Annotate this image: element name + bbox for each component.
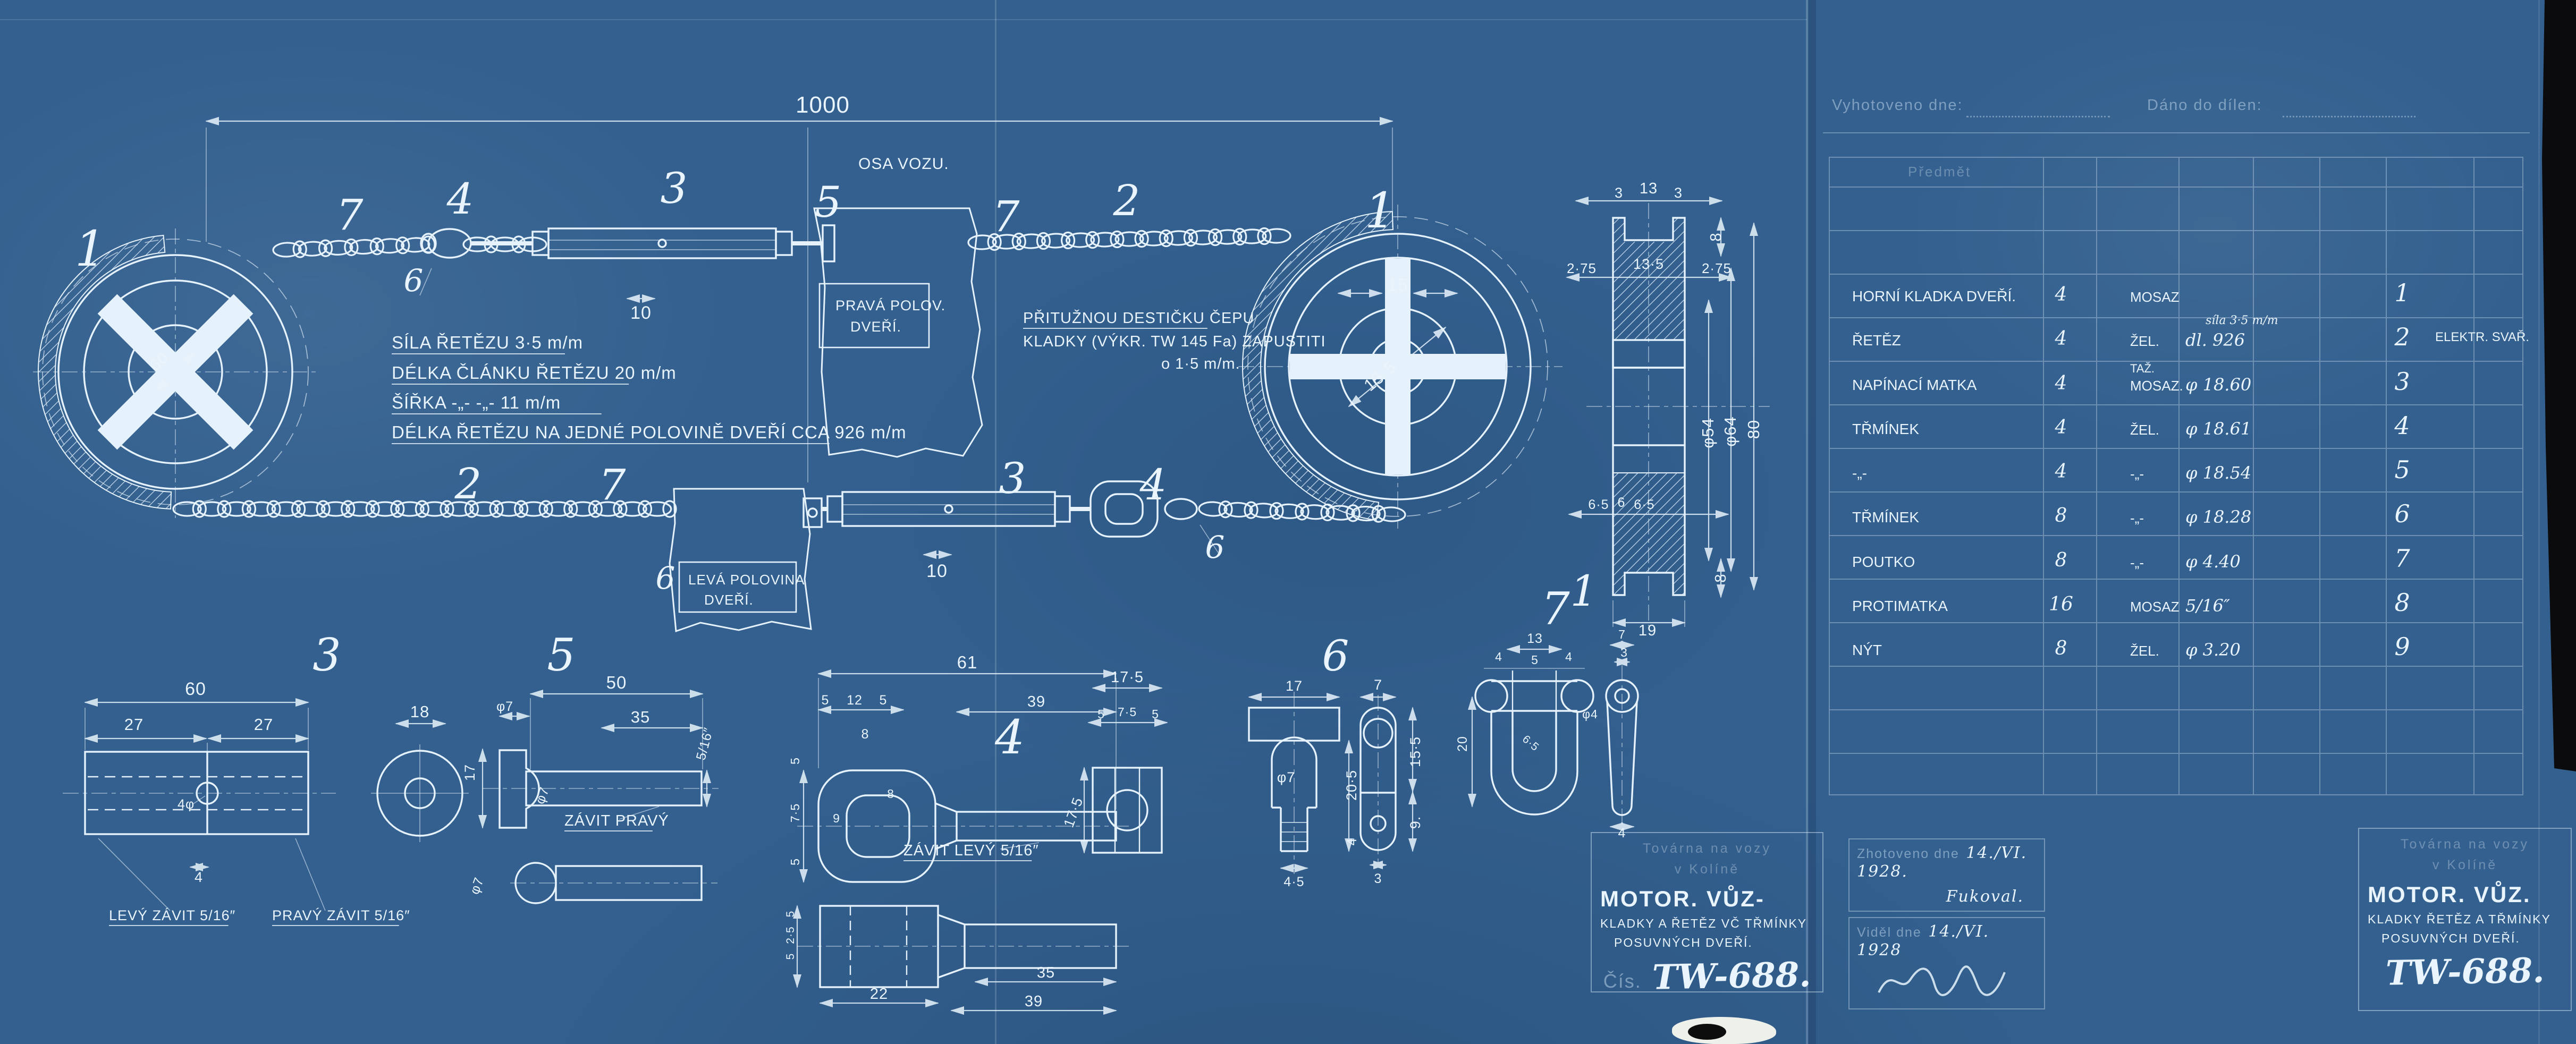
part-position: 4 bbox=[2394, 411, 2410, 440]
table-column-header: Předmět bbox=[1908, 164, 1971, 180]
drawing-label: 39 bbox=[1025, 993, 1043, 1010]
drawing-label: DVEŘÍ. bbox=[704, 592, 754, 608]
part-material: ŽEL. bbox=[2130, 422, 2159, 438]
part-material: -„- bbox=[2130, 510, 2144, 527]
drawing-label: 4 bbox=[1139, 460, 1167, 510]
factory-stamp-right: Továrna na vozy v Kolíně bbox=[2368, 834, 2562, 876]
drawing-label: 3 bbox=[1374, 871, 1382, 886]
drawing-label: 6 bbox=[404, 262, 424, 299]
part-name: POUTKO bbox=[1852, 554, 1915, 571]
chain-link bbox=[1250, 503, 1278, 518]
drawing-subtitle-1: KLADKY A ŘETĚZ VČ TŘMÍNKY bbox=[1600, 916, 1814, 931]
chain-link bbox=[223, 502, 250, 516]
chain-link bbox=[322, 502, 349, 516]
drawing-label: 7 bbox=[599, 460, 626, 510]
chain-link bbox=[1164, 231, 1193, 245]
factory-right-line1: Továrna na vozy bbox=[2401, 837, 2529, 852]
drawing-label: 15 bbox=[1387, 275, 1408, 295]
drawing-label: 5 bbox=[788, 858, 802, 865]
drawing-label: 4 bbox=[1495, 650, 1502, 664]
part-note: ELEKTR. SVAŘ. bbox=[2435, 330, 2529, 345]
part-material: ŽEL. bbox=[2130, 333, 2159, 350]
part-dimension: φ 18.28 bbox=[2185, 507, 2251, 527]
chain-link bbox=[350, 240, 378, 254]
drawing-label: φ4 bbox=[1582, 707, 1598, 721]
drawing-label: ZÁVIT PRAVÝ bbox=[564, 812, 669, 829]
part-material: ŽEL. bbox=[2130, 643, 2159, 659]
part-qty: 8 bbox=[2055, 505, 2067, 527]
drawing-label: 2·75 bbox=[1567, 260, 1597, 276]
part-qty: 4 bbox=[2055, 284, 2067, 305]
made-signature: Fukoval. bbox=[1857, 887, 2037, 906]
drawing-label: OSA VOZU. bbox=[858, 155, 949, 173]
detail-6-tpin-link bbox=[1249, 692, 1396, 874]
part-qty: 16 bbox=[2049, 593, 2073, 615]
part-dimension: φ 18.60 bbox=[2185, 375, 2251, 395]
chain-link bbox=[248, 502, 275, 516]
drawing-label: 4 bbox=[1345, 838, 1359, 846]
drawing-label: 18 bbox=[410, 702, 429, 721]
drawing-label: 17 bbox=[1286, 678, 1303, 694]
seen-date-stamp: Viděl dne 14./VI. 1928 bbox=[1848, 917, 2045, 1009]
drawing-label: 6·5 bbox=[1520, 733, 1541, 753]
chain-link bbox=[297, 502, 325, 516]
drawing-label: 7 bbox=[1541, 583, 1570, 635]
drawing-label: 27 bbox=[254, 715, 273, 734]
part-material: MOSAZ bbox=[2130, 599, 2179, 615]
blueprint-sheet: 1743572162763463546711000OSA VOZU.101060… bbox=[0, 0, 2576, 1044]
drawing-label: 4φ bbox=[178, 797, 195, 812]
drawing-label: 3 bbox=[313, 629, 341, 681]
drawing-label: 8 bbox=[887, 787, 894, 801]
part-dimension: φ 4.40 bbox=[2185, 551, 2241, 572]
made-date-stamp: Zhotoveno dne 14./VI. 1928. Fukoval. bbox=[1848, 838, 2045, 912]
part-dimension: φ 3.20 bbox=[2185, 640, 2241, 660]
part-name: NÝT bbox=[1852, 642, 1882, 659]
drawing-label: 5 bbox=[547, 629, 575, 681]
chain-link bbox=[1066, 233, 1094, 247]
part-dimension: 5/16″ bbox=[2185, 596, 2230, 616]
drawing-label: o 1·5 m/m. bbox=[1161, 355, 1240, 372]
drawing-label: φ54 bbox=[1699, 418, 1717, 448]
drawing-label: 9 bbox=[833, 811, 840, 825]
drawing-label: 35 bbox=[1037, 964, 1055, 981]
part-dimension-note: síla 3·5 m/m bbox=[2206, 314, 2278, 327]
drawing-label: 5 bbox=[1531, 653, 1539, 667]
part-dimension: φ 18.54 bbox=[2185, 463, 2251, 483]
made-date-label: Zhotoveno dne bbox=[1857, 846, 1960, 861]
part-position: 3 bbox=[2394, 367, 2410, 396]
factory-line2: v Kolíně bbox=[1675, 862, 1739, 877]
chain-link bbox=[1263, 228, 1291, 243]
drawing-label: 10 bbox=[926, 561, 948, 581]
drawing-label: PRAVÝ ZÁVIT 5/16″ bbox=[272, 907, 410, 923]
drawing-label: 6 bbox=[1205, 529, 1225, 565]
drawing-label: 3 bbox=[999, 454, 1026, 503]
part-name: TŘMÍNEK bbox=[1852, 509, 1919, 526]
chain-link bbox=[968, 235, 996, 249]
drawing-label: DÉLKA ČLÁNKU ŘETĚZU 20 m/m bbox=[392, 363, 677, 383]
bottom-chain-run-parts bbox=[670, 481, 1197, 631]
drawing-label: 7·5 bbox=[788, 803, 802, 822]
drawing-label: 13·5 bbox=[1633, 256, 1664, 272]
drawing-label: PŘITUŽNOU DESTIČKU ČEPU bbox=[1023, 309, 1254, 327]
part-position: 5 bbox=[2394, 455, 2410, 484]
drawing-label: 17 bbox=[462, 764, 478, 781]
part-qty: 4 bbox=[2055, 461, 2067, 482]
number-label: Čís. bbox=[1603, 970, 1642, 992]
drawing-subtitle-right-2: POSUVNÝCH DVEŘÍ. bbox=[2381, 931, 2562, 946]
part-qty: 4 bbox=[2055, 328, 2067, 350]
drawing-label: LEVÝ ZÁVIT 5/16″ bbox=[109, 907, 235, 923]
drawing-label: 8 bbox=[1708, 232, 1725, 241]
drawing-label: 61 bbox=[957, 652, 978, 672]
part-qty: 8 bbox=[2055, 638, 2067, 659]
drawing-label: 19 bbox=[1638, 622, 1657, 639]
factory-line1: Továrna na vozy bbox=[1643, 841, 1771, 856]
part-name: ŘETĚZ bbox=[1852, 332, 1901, 349]
detail-3-barrel bbox=[63, 744, 469, 842]
drawing-label: φ7 bbox=[1277, 769, 1296, 785]
to-workshop-line bbox=[2283, 116, 2415, 117]
chain-link bbox=[644, 502, 671, 516]
drawing-label: 27 bbox=[124, 715, 143, 734]
chain-link bbox=[1213, 230, 1241, 244]
pulley-cross-section bbox=[1586, 203, 1770, 626]
drawing-label: 3 bbox=[1674, 185, 1683, 201]
drawing-label: 5 bbox=[784, 911, 797, 918]
detail-4-eyebolt bbox=[797, 768, 1162, 987]
drawing-label: ZÁVIT LEVÝ 5/16″ bbox=[903, 842, 1039, 859]
chain-link bbox=[396, 502, 424, 516]
chain-link bbox=[1378, 507, 1406, 522]
title-block-center: Továrna na vozy v Kolíně MOTOR. VŮZ- KLA… bbox=[1591, 832, 1823, 992]
drawing-label: PRAVÁ POLOV. bbox=[835, 298, 945, 313]
chain-link bbox=[371, 502, 399, 516]
drawing-label: 4 bbox=[994, 710, 1025, 765]
part-position: 6 bbox=[2394, 499, 2410, 528]
part-qty: 4 bbox=[2055, 417, 2067, 438]
drawing-label: 5 bbox=[1152, 707, 1159, 721]
chain-link bbox=[544, 502, 572, 516]
drawing-label: LEVÁ POLOVINA bbox=[688, 572, 805, 588]
part-position: 2 bbox=[2394, 322, 2410, 351]
part-material: -„- bbox=[2130, 466, 2144, 482]
drawing-label: 3 bbox=[1620, 646, 1628, 659]
drawing-label: 6 bbox=[1322, 631, 1349, 681]
chain-link bbox=[1238, 229, 1266, 243]
drawing-label: φ7 bbox=[467, 875, 487, 896]
to-workshop-label: Dáno do dílen: bbox=[2147, 97, 2262, 114]
chain-link bbox=[421, 502, 449, 516]
drawing-label: 1 bbox=[1365, 182, 1396, 239]
drawing-label: 6 bbox=[1618, 495, 1626, 510]
part-dimension: dl. 926 bbox=[2185, 330, 2245, 350]
chain-link bbox=[272, 502, 300, 516]
drawing-label: 5 bbox=[815, 177, 842, 227]
drawing-label: 7·5 bbox=[1118, 705, 1137, 719]
drawing-label: 2·5 bbox=[784, 926, 797, 944]
chain-link bbox=[1140, 231, 1168, 245]
factory-stamp: Továrna na vozy v Kolíně bbox=[1600, 838, 1814, 880]
drawing-label: 2·75 bbox=[1702, 260, 1732, 276]
drawing-label: 7 bbox=[993, 192, 1020, 241]
drawing-label: KLADKY (VÝKR. TW 145 Fa) ZAPUSTITI bbox=[1023, 333, 1326, 350]
chain-link bbox=[1224, 503, 1253, 517]
part-material-prefix: TAŽ. bbox=[2130, 362, 2155, 376]
drawing-label: 1 bbox=[1570, 566, 1598, 616]
part-position: 1 bbox=[2394, 278, 2410, 307]
drawing-label: 1 bbox=[75, 220, 106, 277]
title-block-right: Továrna na vozy v Kolíně MOTOR. VŮZ. KLA… bbox=[2358, 828, 2572, 1011]
drawing-number-right: TW-688. bbox=[2385, 950, 2545, 993]
drawing-label: 60 bbox=[185, 679, 206, 699]
drawing-label: 20·5 bbox=[1344, 770, 1359, 801]
drawing-label: 5 bbox=[788, 757, 802, 765]
drawing-number: TW-688. bbox=[1652, 955, 1811, 997]
drawing-label: 9. bbox=[1407, 816, 1423, 829]
chain-link bbox=[376, 239, 404, 253]
drawing-annotations: 1743572162763463546711000OSA VOZU.101060… bbox=[75, 92, 1763, 1010]
drawing-label: SÍLA ŘETĚZU 3·5 m/m bbox=[392, 333, 583, 352]
drawing-label: 35 bbox=[631, 708, 650, 726]
drawing-label: 1000 bbox=[796, 92, 850, 118]
drawing-label: ŠÍŘKA -„- -„- 11 m/m bbox=[392, 393, 561, 412]
drawing-label: 7 bbox=[1374, 677, 1382, 693]
part-qty: 8 bbox=[2055, 549, 2067, 571]
drawing-label: 3 bbox=[661, 164, 688, 213]
extension-line bbox=[295, 838, 325, 911]
chain-link bbox=[273, 242, 301, 257]
drawing-label: 5 bbox=[784, 953, 797, 960]
parts-table-grid bbox=[1823, 133, 2530, 795]
drawing-label: 7 bbox=[336, 190, 364, 240]
chain-link bbox=[347, 502, 374, 516]
drawing-subtitle-2: POSUVNÝCH DVEŘÍ. bbox=[1614, 936, 1814, 950]
chain-link bbox=[1189, 230, 1217, 244]
chain-link bbox=[299, 241, 327, 256]
drawing-subtitle-right-1: KLADKY ŘETĚZ A TŘMÍNKY bbox=[2368, 912, 2562, 927]
part-name: NAPÍNACÍ MATKA bbox=[1852, 377, 1977, 394]
drawing-label: 7 bbox=[1618, 627, 1626, 641]
part-position: 9 bbox=[2394, 632, 2410, 661]
part-dimension: φ 18.61 bbox=[2185, 419, 2251, 439]
drawing-label: 8 bbox=[1712, 573, 1729, 582]
chain-link bbox=[1091, 232, 1119, 247]
chain-link bbox=[1199, 502, 1227, 516]
drawing-label: DÉLKA ŘETĚZU NA JEDNÉ POLOVINĚ DVEŘÍ CCA… bbox=[392, 422, 907, 442]
drawing-label: 50 bbox=[606, 673, 627, 692]
drawing-label: 8 bbox=[862, 727, 869, 742]
drawing-label: 2 bbox=[454, 459, 482, 508]
drawing-label: 13 bbox=[1640, 180, 1658, 197]
drawing-label: 6 bbox=[656, 560, 675, 596]
extension-line bbox=[98, 838, 170, 911]
drawing-label: 15·5 bbox=[1407, 736, 1423, 767]
drawing-label: 4 bbox=[1565, 650, 1573, 664]
static-drawing bbox=[33, 133, 2530, 987]
chain-link bbox=[401, 237, 429, 252]
drawing-title: MOTOR. VŮZ- bbox=[1600, 886, 1814, 912]
signature-scribble bbox=[1871, 955, 2030, 1003]
drawing-label: 6·5 bbox=[1588, 497, 1609, 512]
drawing-label: DVEŘÍ. bbox=[850, 318, 901, 335]
drawing-label: 13 bbox=[1527, 631, 1543, 646]
chain-link bbox=[1116, 232, 1144, 246]
seen-date-label: Viděl dne bbox=[1857, 925, 1922, 940]
drawing-label: 6·5 bbox=[1634, 497, 1654, 512]
part-material: MOSAZ bbox=[2130, 289, 2179, 305]
chain-link bbox=[1301, 505, 1329, 520]
drawing-label: 12 bbox=[847, 693, 863, 708]
drawing-label: 20 bbox=[1455, 736, 1470, 752]
part-name: TŘMÍNEK bbox=[1852, 421, 1919, 438]
part-material: MOSAZ. bbox=[2130, 378, 2183, 394]
part-position: 7 bbox=[2394, 544, 2410, 573]
drawing-label: φ64 bbox=[1721, 416, 1739, 447]
drawing-label: 22 bbox=[870, 986, 888, 1003]
chain-link bbox=[324, 240, 352, 255]
made-on-date-line bbox=[1966, 116, 2110, 117]
chain-link bbox=[569, 502, 597, 516]
drawing-title-right: MOTOR. VŮZ. bbox=[2368, 882, 2562, 907]
detail-7-shackle bbox=[1475, 665, 1638, 829]
part-name: HORNÍ KLADKA DVEŘÍ. bbox=[1852, 288, 2016, 305]
chain-link bbox=[520, 502, 547, 516]
chain-link bbox=[1017, 234, 1045, 248]
part-position: 8 bbox=[2394, 588, 2410, 617]
drawing-label: 5 bbox=[880, 693, 888, 708]
drawing-label: 2 bbox=[1113, 176, 1141, 225]
drawing-label: 5 bbox=[1097, 707, 1105, 721]
drawing-label: 5 bbox=[822, 693, 830, 708]
drawing-label: 5/16″ bbox=[694, 726, 716, 762]
drawing-label: 17·5 bbox=[1111, 669, 1144, 686]
chain-link bbox=[198, 502, 226, 516]
drawing-label: φ7 bbox=[496, 699, 513, 714]
drawing-label: 4 bbox=[195, 869, 203, 885]
right-pulley-front-view bbox=[1238, 205, 1563, 529]
drawing-label: 80 bbox=[1744, 420, 1763, 439]
chain-link bbox=[1276, 504, 1304, 519]
part-name: PROTIMATKA bbox=[1852, 598, 1948, 615]
paper-tear-blob bbox=[1672, 1017, 1776, 1044]
made-on-date-label: Vyhotoveno dne: bbox=[1832, 97, 1963, 114]
factory-right-line2: v Kolíně bbox=[2433, 858, 2497, 872]
drawing-label: 10 bbox=[630, 303, 652, 323]
part-name: -„- bbox=[1852, 465, 1867, 482]
drawing-label: 39 bbox=[1027, 693, 1045, 710]
chain-link bbox=[1042, 233, 1070, 248]
part-material: -„- bbox=[2130, 555, 2144, 571]
drawing-label: 4 bbox=[446, 174, 474, 224]
drawing-label: 3 bbox=[1615, 185, 1623, 201]
drawing-label: 4·5 bbox=[1283, 875, 1304, 889]
part-qty: 4 bbox=[2055, 372, 2067, 394]
chain-link bbox=[495, 502, 522, 516]
chains bbox=[173, 228, 1405, 522]
